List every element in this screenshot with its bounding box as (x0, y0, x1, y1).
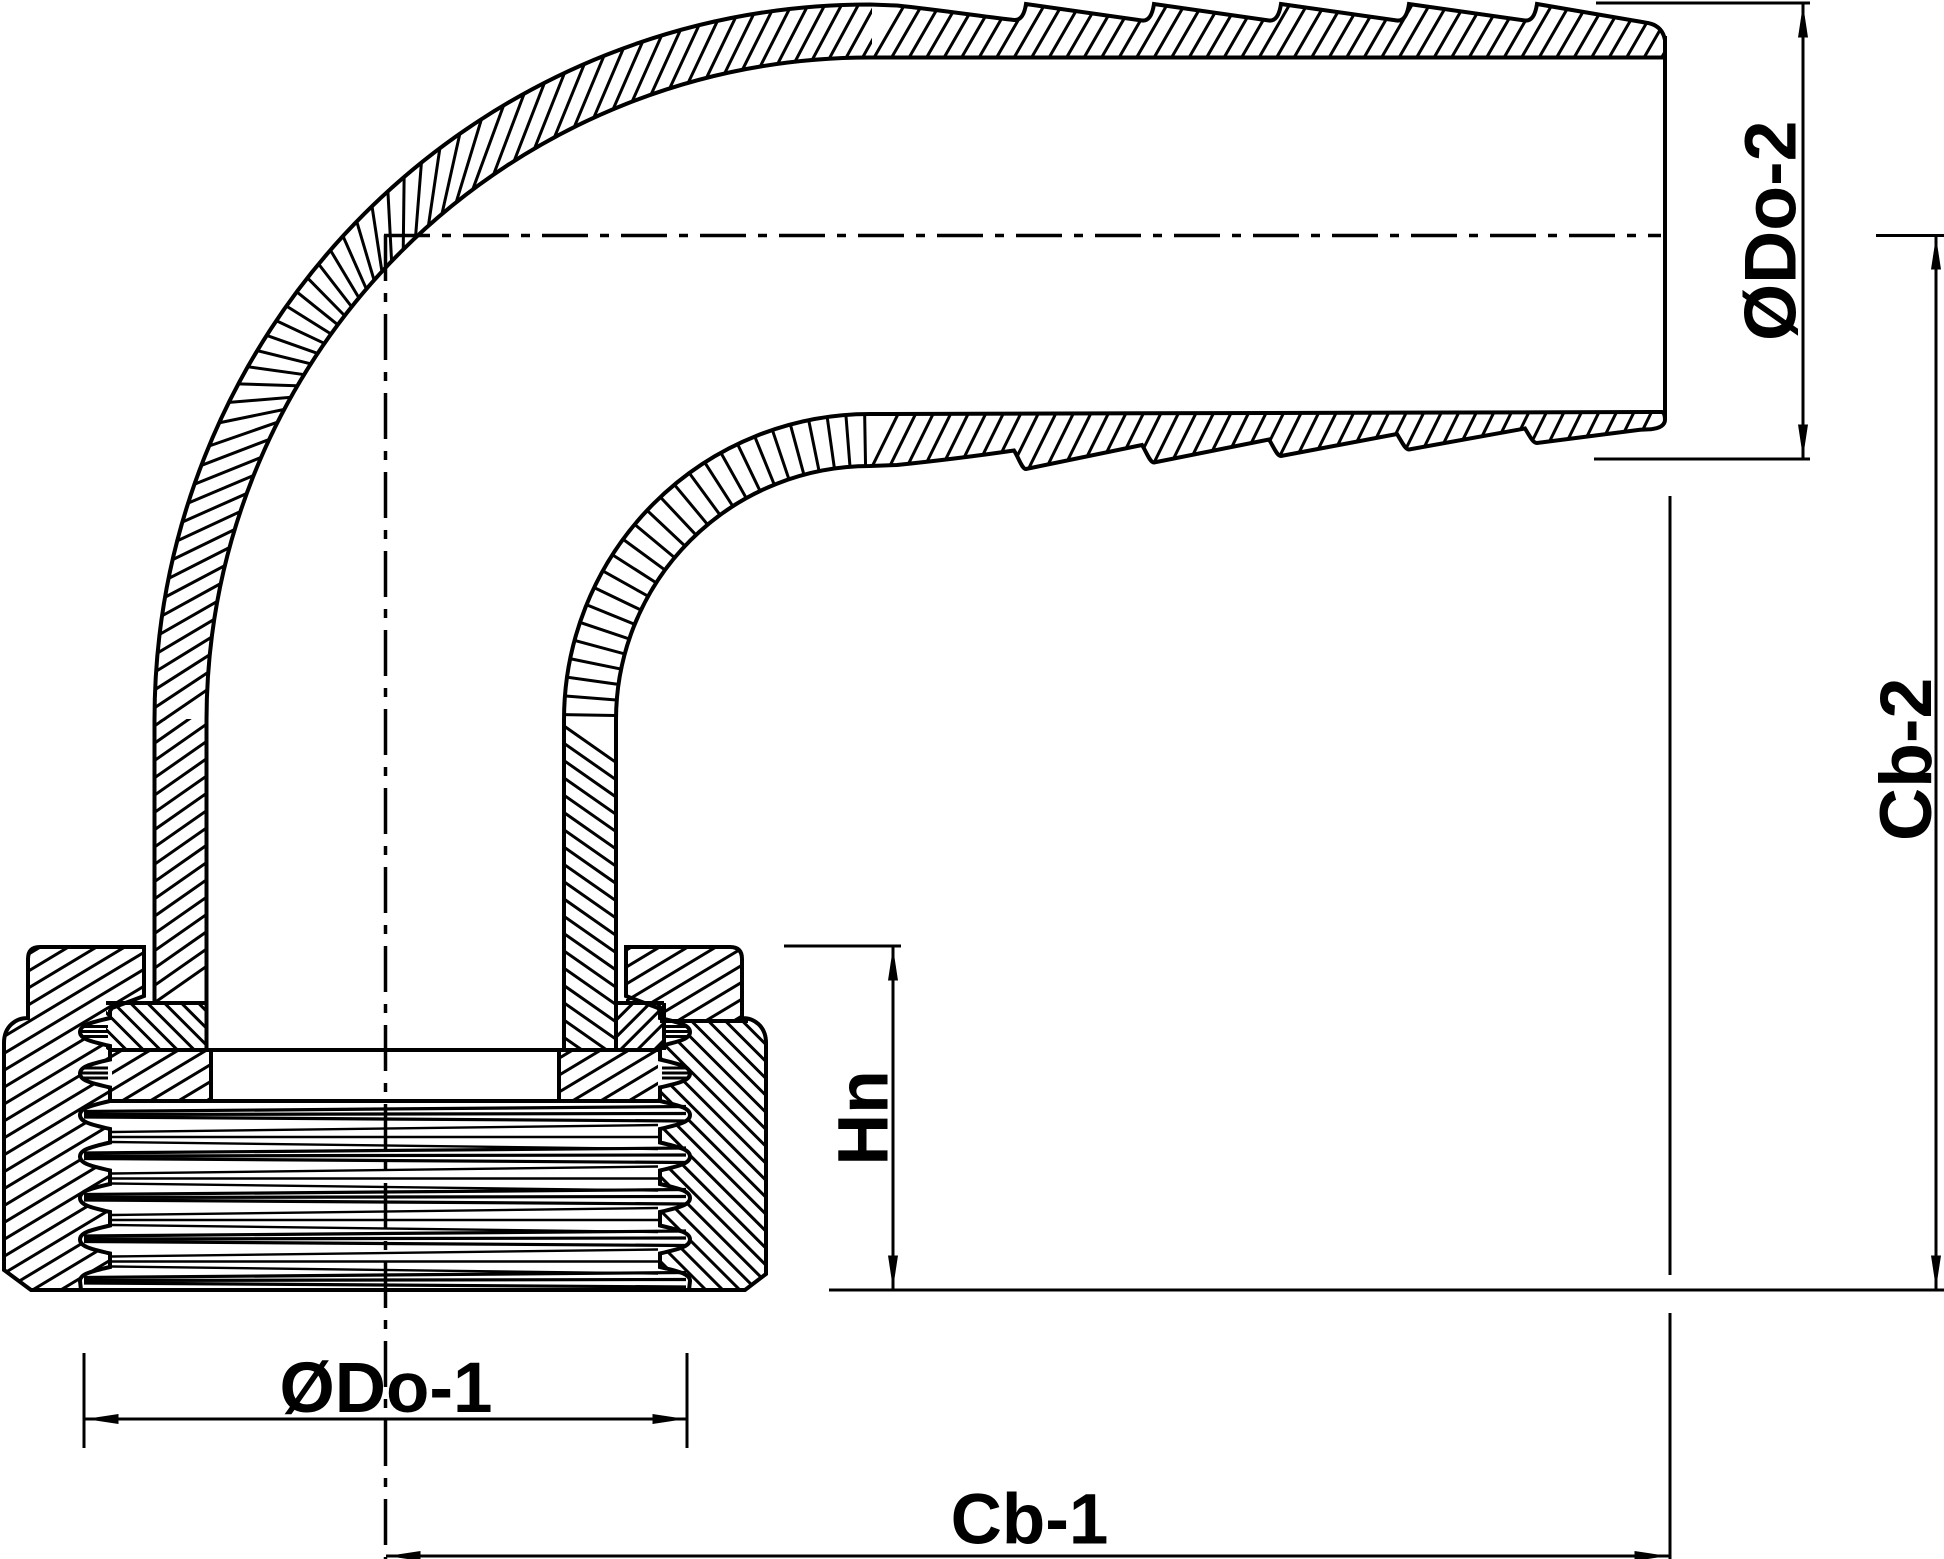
svg-text:Cb-1: Cb-1 (951, 1481, 1109, 1559)
svg-text:Hn: Hn (824, 1070, 904, 1165)
svg-text:ØDo-1: ØDo-1 (280, 1349, 493, 1428)
svg-text:Cb-2: Cb-2 (1864, 678, 1944, 841)
svg-text:ØDo-2: ØDo-2 (1729, 121, 1812, 342)
